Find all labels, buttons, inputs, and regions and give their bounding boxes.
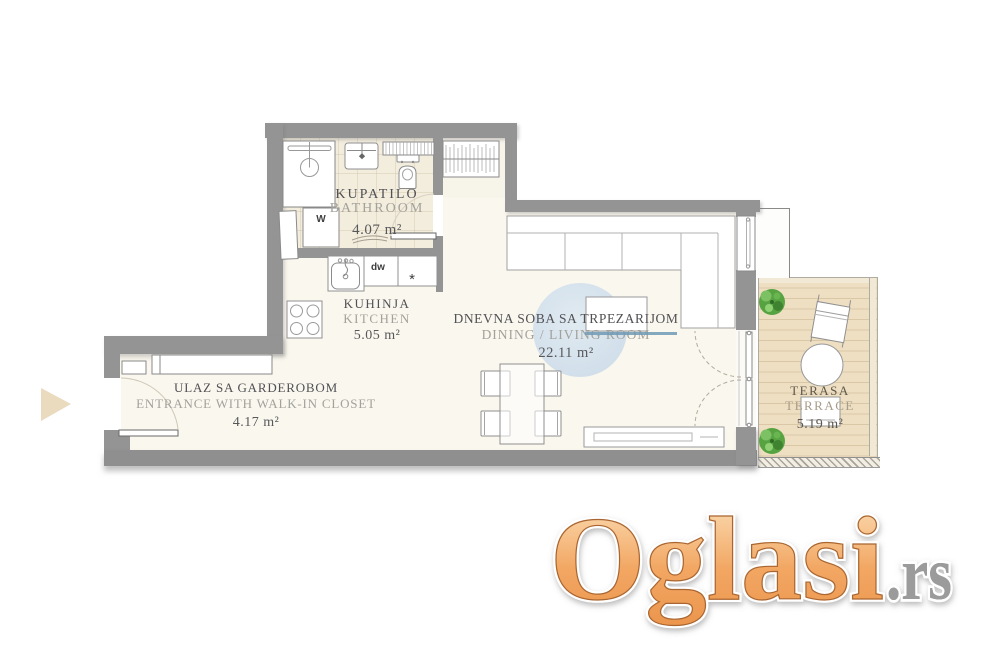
svg-text:*: *: [409, 271, 415, 288]
svg-text:Oglasi: Oglasi: [550, 492, 884, 626]
svg-text:.rs: .rs: [886, 532, 952, 616]
svg-text:dw: dw: [371, 262, 385, 273]
